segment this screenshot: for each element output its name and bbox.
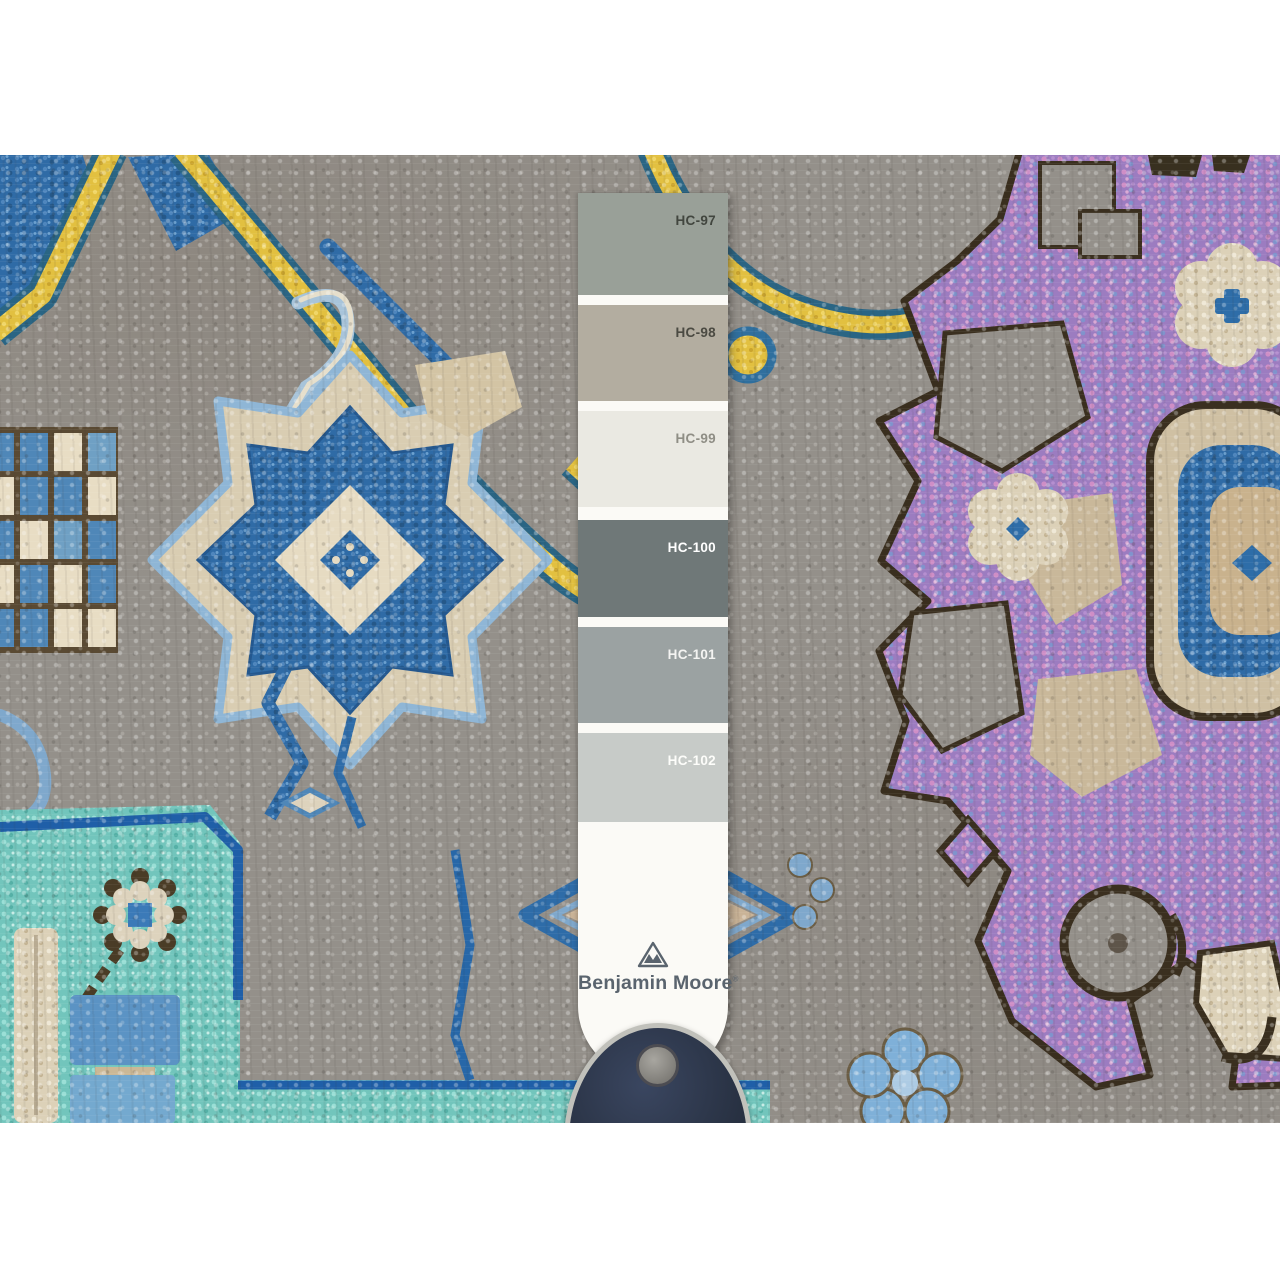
rug-photo: HC-97 HC-98 HC-99 HC-100 HC-101 HC-102 [0,155,1280,1123]
paint-swatch-hc-99: HC-99 [578,411,728,507]
rug-blue-flower [848,1029,962,1123]
registered-mark: ® [733,975,739,984]
rug-checkerboard [0,427,118,653]
brand-text: Benjamin Moore® [578,972,728,995]
swatch-label-hc-98: HC-98 [675,325,716,340]
photo-page: HC-97 HC-98 HC-99 HC-100 HC-101 HC-102 [0,0,1280,1280]
brand-name: Benjamin Moore [578,972,733,994]
rug-diamond-medallion [285,790,834,990]
paint-swatch-hc-98: HC-98 [578,305,728,401]
swatch-label-hc-97: HC-97 [675,213,716,228]
paint-swatch-hc-102: HC-102 [578,733,728,822]
rug-blue-gul [1150,405,1280,717]
paint-swatch-hc-101: HC-101 [578,627,728,723]
paint-swatch-hc-100: HC-100 [578,520,728,617]
paint-sample-strip: HC-97 HC-98 HC-99 HC-100 HC-101 HC-102 [578,193,728,1078]
swatch-label-hc-102: HC-102 [668,753,716,768]
rug-purple-medallion [879,155,1280,1087]
swatch-label-hc-99: HC-99 [675,431,716,446]
benjamin-moore-logo: Benjamin Moore® [578,941,728,995]
rug-left-edge-arc [0,715,45,820]
paint-swatch-hc-97: HC-97 [578,193,728,295]
tool-knob [636,1044,679,1087]
swatch-label-hc-101: HC-101 [668,647,716,662]
swatch-label-hc-100: HC-100 [668,540,716,555]
rug-left-medallion [152,351,548,827]
triangle-m-icon [636,941,670,969]
